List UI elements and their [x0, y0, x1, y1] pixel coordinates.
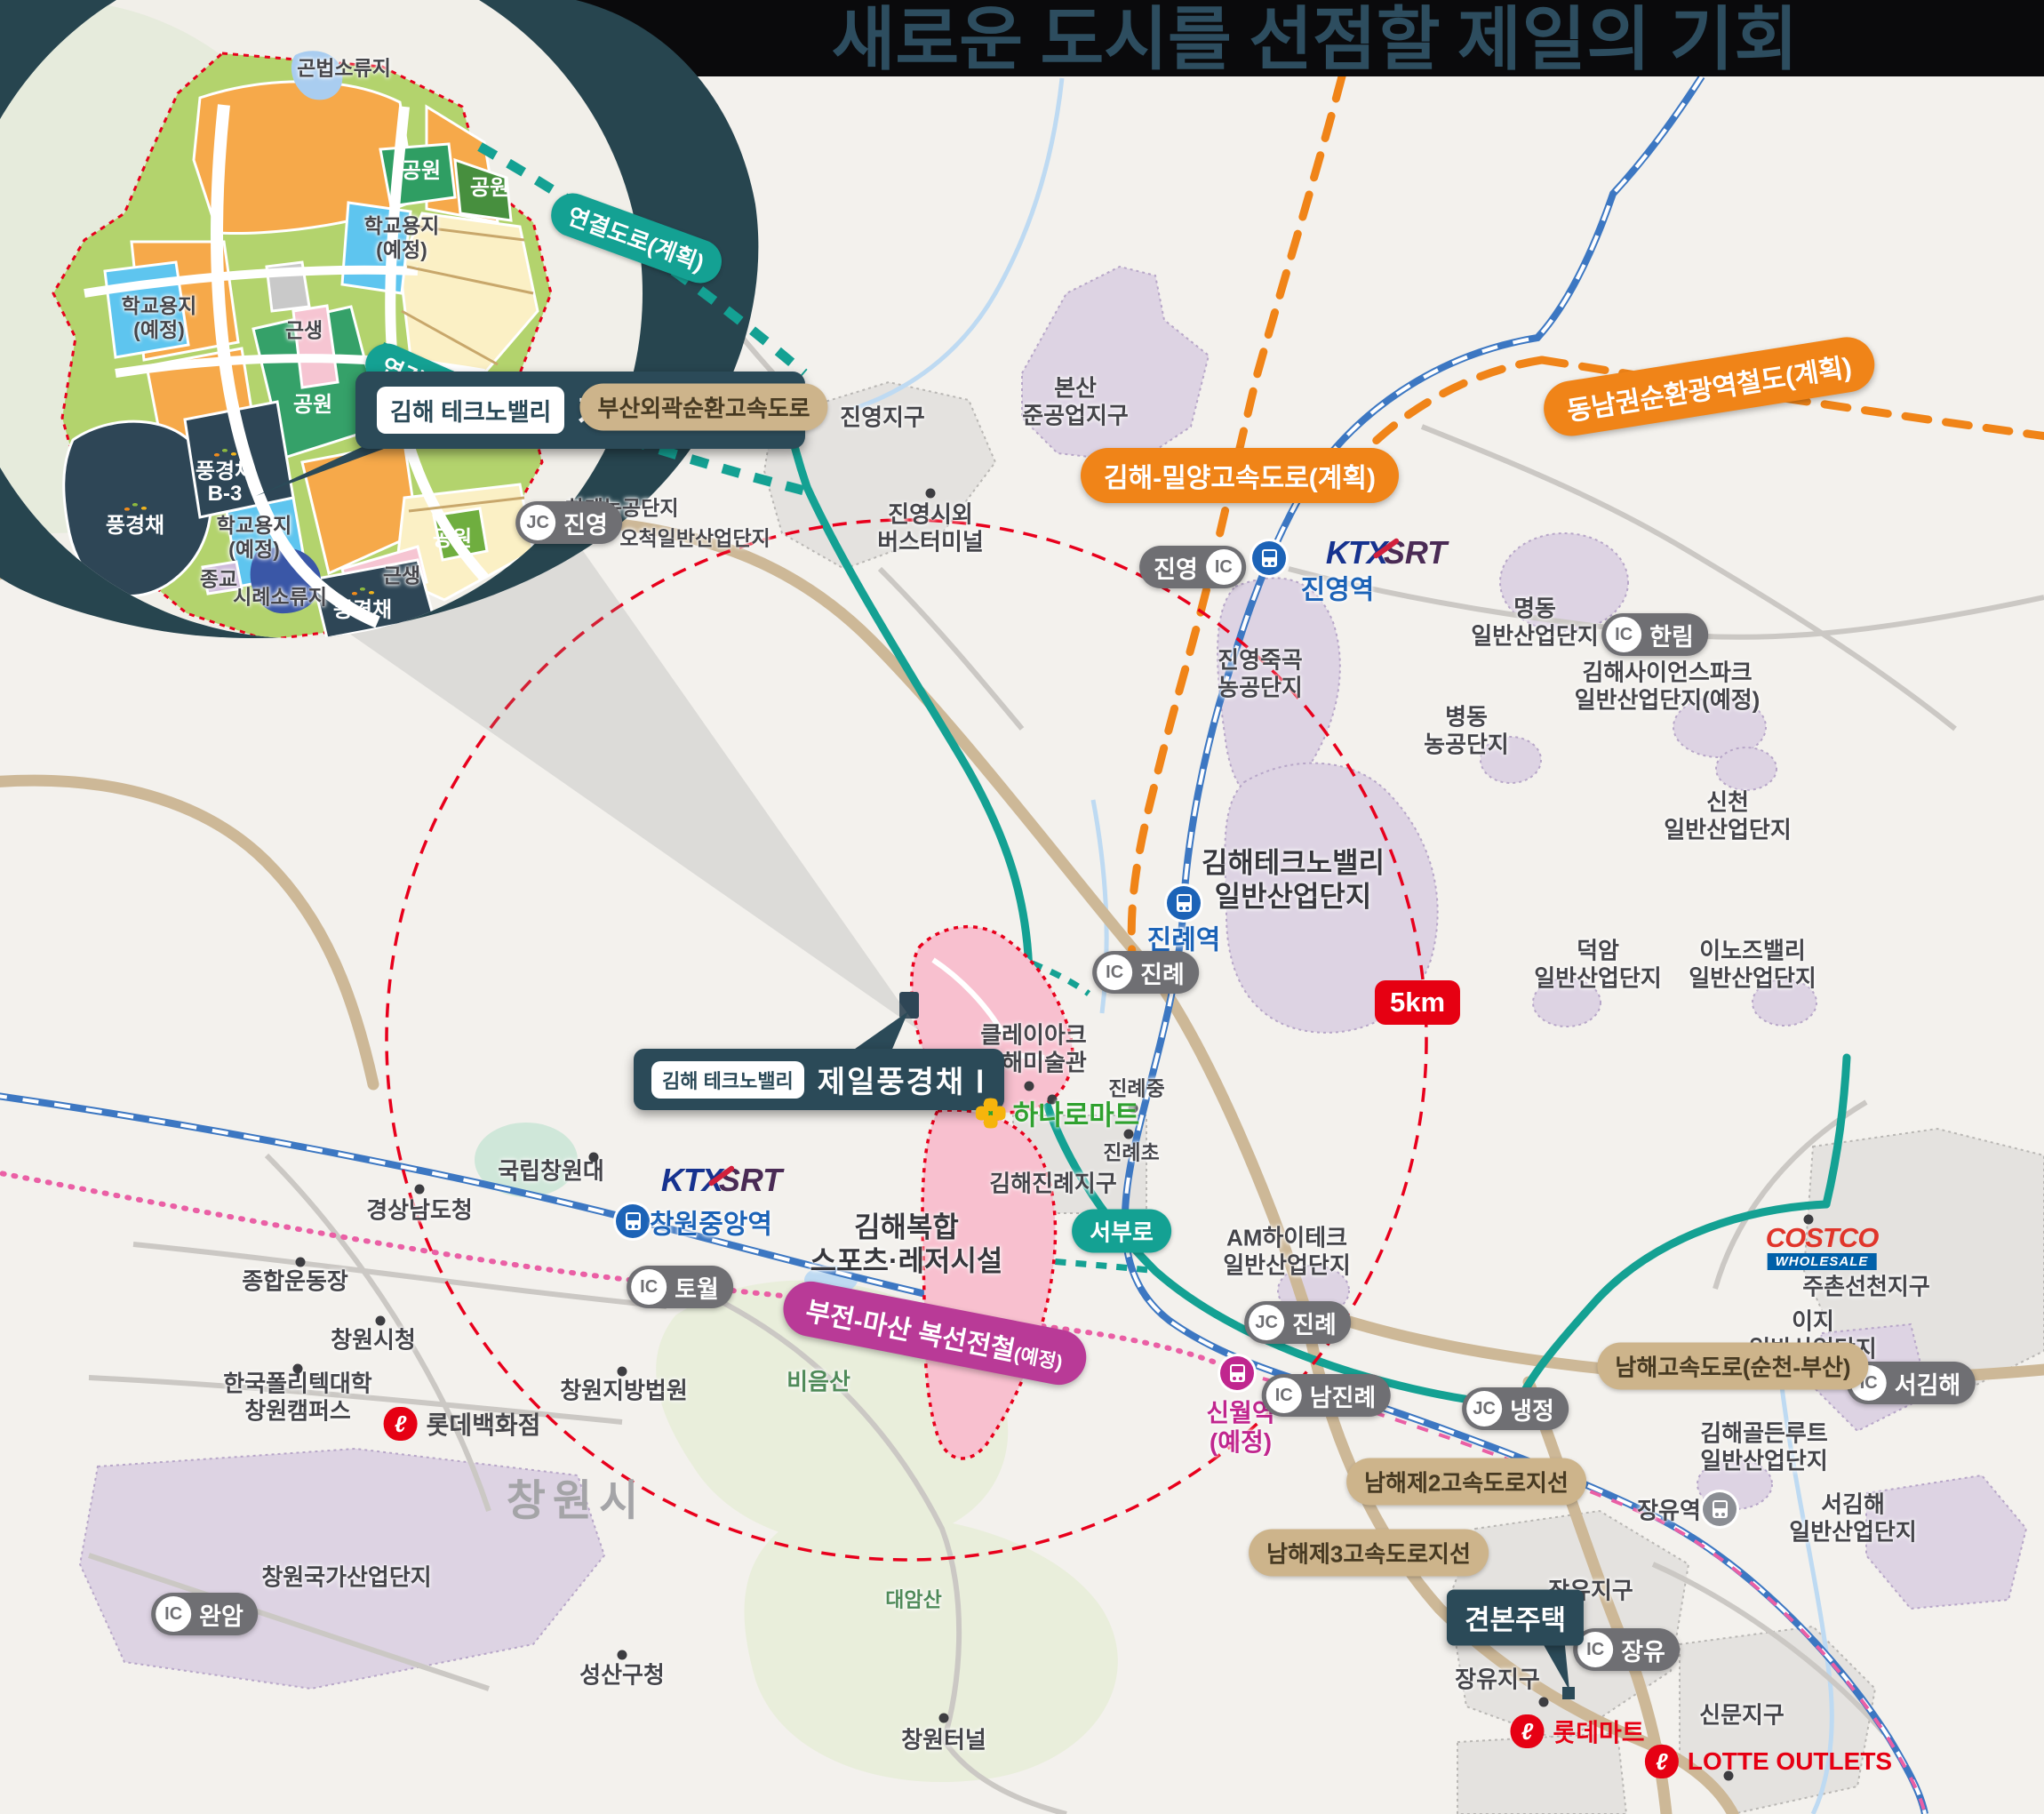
area-label: 진영시외 버스터미널 [877, 500, 984, 555]
inset-label: 곤법소류지 [297, 56, 391, 80]
train-station-icon [616, 1204, 650, 1238]
lotte-outlets-poi: ℓLOTTE OUTLETS [1645, 1745, 1892, 1778]
area-label: 창원국가산업단지 [261, 1564, 431, 1592]
callout-name: 제일풍경채 Ⅰ [818, 1058, 986, 1101]
street-name-pill: 서부로 [1072, 1210, 1171, 1253]
radius-badge: 5km [1375, 980, 1460, 1025]
interchange-badge: IC한림 [1601, 613, 1708, 656]
leaf-icon [348, 586, 377, 597]
leaf-icon [121, 501, 149, 513]
poi-dot [293, 1364, 303, 1374]
inset-label: 학교용지 (예정) [364, 214, 440, 262]
station-label: 장유역 [1637, 1498, 1701, 1525]
lotte-icon: ℓ [1510, 1714, 1544, 1748]
area-label: 덕암 일반산업단지 [1534, 937, 1662, 991]
area-label: 김해골든루트 일반산업단지 [1700, 1419, 1828, 1474]
poi-label: 창원시청 [331, 1327, 416, 1355]
lotte-dept-poi: ℓ롯데백화점 [384, 1406, 541, 1442]
area-label: 진례초 [1103, 1140, 1159, 1164]
poi-dot [1025, 1082, 1034, 1091]
inset-label: 근생 [285, 318, 323, 342]
mountain-label: 대암산 [885, 1587, 941, 1611]
interchange-badge: IC남진례 [1262, 1374, 1391, 1417]
planned-road-pill: 김해-밀양고속도로(계획) [1081, 448, 1399, 503]
poi-label: 경상남도청 [366, 1197, 473, 1225]
train-station-icon [1220, 1356, 1254, 1390]
inset-label: 종교 [200, 567, 237, 591]
poi-dot [589, 1153, 599, 1163]
inset-label-pgc: 풍경채 [106, 501, 164, 539]
road-name-pill: 부산외곽순환고속도로 [579, 384, 827, 431]
train-station-icon [1167, 886, 1201, 920]
area-label: 명동 일반산업단지 [1471, 595, 1599, 649]
costco-poi: COSTCOWHOLESALE [1766, 1222, 1879, 1270]
road-name-pill: 남해제3고속도로지선 [1249, 1530, 1489, 1577]
callout-badge: 김해 테크노밸리 [651, 1061, 804, 1099]
interchange-badge: IC토월 [627, 1266, 733, 1308]
poi-dot [1539, 1698, 1549, 1707]
poi-label: 종합운동장 [242, 1268, 348, 1296]
area-label: 신천 일반산업단지 [1664, 788, 1792, 843]
area-label: 이노즈밸리 일반산업단지 [1689, 937, 1816, 991]
area-label: AM하이테크 일반산업단지 [1223, 1224, 1351, 1278]
callout-badge: 김해 테크노밸리 [377, 387, 564, 434]
poi-dot [296, 1258, 306, 1267]
interchange-badge: IC완암 [151, 1593, 258, 1635]
station-label: 진영역 [1301, 574, 1375, 605]
interchange-badge: IC진영 [1139, 546, 1246, 588]
poi-label: 국립창원대 [498, 1158, 604, 1186]
area-label: 신문지구 [1699, 1702, 1785, 1730]
city-label: 창원시 [507, 1477, 645, 1528]
inset-label-pgc-b3: 풍경채 [196, 447, 254, 484]
junction-badge: JC냉정 [1462, 1387, 1569, 1430]
inset-label: 학교용지 (예정) [122, 294, 197, 342]
interchange-badge: IC장유 [1573, 1628, 1680, 1671]
area-label: 장유지구 [1455, 1666, 1540, 1694]
poi-label: 한국폴리텍대학 창원캠퍼스 [223, 1370, 371, 1424]
inset-label: 학교용지 (예정) [217, 514, 292, 562]
area-label: 김해사이언스파크 일반산업단지(예정) [1575, 659, 1761, 713]
area-label: 진영지구 [840, 404, 925, 432]
inset-label: 공원 [433, 527, 472, 552]
page-title: 새로운 도시를 선점할 제일의 기회 [832, 0, 1800, 84]
poi-label: 창원지방법원 [560, 1378, 688, 1405]
area-label: 본산 준공업지구 [1022, 374, 1129, 428]
poi-dot [415, 1185, 425, 1195]
area-label: 주촌선천지구 [1802, 1274, 1930, 1301]
area-label: 김해테크노밸리 일반산업단지 [1202, 846, 1385, 914]
map-callout-pointer [849, 1011, 908, 1053]
inset-label-pgc: 풍경채 [333, 586, 392, 623]
location-map: 새로운 도시를 선점할 제일의 기회 곤법소류지 공원 공원 학교용지 (예정)… [0, 0, 2044, 1814]
lotte-icon: ℓ [1645, 1745, 1679, 1778]
sample-house-badge: 견본주택 [1447, 1590, 1584, 1646]
inset-label: 공원 [402, 159, 441, 184]
hanaro-flower-icon [976, 1098, 1006, 1128]
road-name-pill: 남해제2고속도로지선 [1346, 1458, 1586, 1506]
overlay-deco [0, 0, 2044, 1814]
samplehouse-marker [1562, 1687, 1575, 1699]
poi-label: 성산구청 [579, 1662, 665, 1690]
poi-dot [939, 1714, 949, 1723]
hanaro-mart-poi: 하나로마트 [976, 1093, 1140, 1133]
junction-badge: JC진례 [1244, 1301, 1351, 1344]
area-label: 김해복합 스포츠·레저시설 [810, 1211, 1003, 1278]
train-station-icon [1252, 541, 1286, 575]
lotte-icon: ℓ [384, 1407, 418, 1441]
area-label: 김해진례지구 [989, 1171, 1117, 1198]
junction-badge: JC진영 [515, 501, 622, 544]
mountain-label: 비음산 [786, 1369, 850, 1396]
area-label: 진영죽곡 농공단지 [1218, 646, 1303, 700]
train-station-icon [1703, 1492, 1737, 1526]
title-bold: 제일의 기회 [1457, 1, 1799, 78]
poi-label: 창원터널 [901, 1727, 986, 1754]
road-name-pill: 남해고속도로(순천-부산) [1597, 1343, 1868, 1390]
area-label: 병동 농공단지 [1424, 703, 1509, 757]
ktx-srt-logo: KTXSRT [1326, 534, 1447, 571]
interchange-badge: IC진례 [1092, 951, 1199, 994]
poi-dot [618, 1650, 627, 1660]
inset-label: 시례소류지 [233, 585, 327, 609]
lotte-mart-poi: ℓ롯데마트 [1510, 1714, 1644, 1749]
poi-dot [376, 1316, 386, 1326]
poi-dot [618, 1367, 627, 1377]
area-label: 오척일반산업단지 [619, 526, 770, 550]
inset-label: 근생 [383, 563, 420, 587]
project-callout: 김해 테크노밸리 제일풍경채 Ⅰ [634, 1049, 1004, 1110]
area-label: 서김해 일반산업단지 [1789, 1490, 1917, 1545]
inset-label: 공원 [470, 176, 509, 201]
title-normal: 새로운 도시를 선점할 [832, 1, 1457, 78]
station-label: 창원중앙역 [650, 1209, 772, 1240]
leaf-icon [211, 447, 239, 459]
ktx-srt-logo: KTXSRT [661, 1162, 782, 1199]
inset-label: B-3 [208, 482, 243, 507]
inset-label: 공원 [293, 393, 332, 418]
poi-dot [926, 489, 936, 499]
